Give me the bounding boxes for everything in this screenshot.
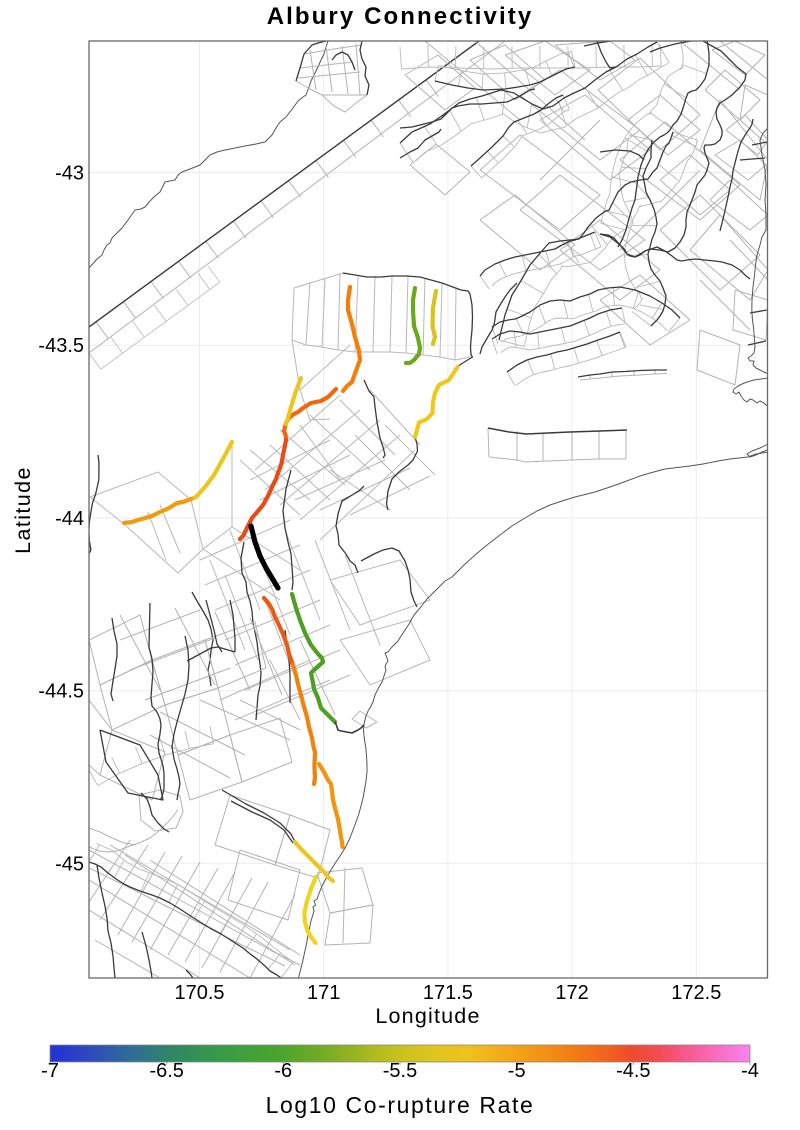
svg-text:-44: -44: [55, 508, 84, 530]
svg-text:-45: -45: [55, 853, 84, 875]
svg-text:172: 172: [555, 982, 588, 1004]
svg-text:171.5: 171.5: [423, 982, 473, 1004]
svg-text:-43: -43: [55, 163, 84, 185]
svg-text:-4: -4: [741, 1060, 759, 1082]
svg-text:-4.5: -4.5: [616, 1060, 650, 1082]
svg-text:170.5: 170.5: [174, 982, 224, 1004]
svg-text:Albury Connectivity: Albury Connectivity: [267, 3, 534, 30]
svg-text:-43.5: -43.5: [38, 335, 84, 357]
svg-text:-7: -7: [41, 1060, 59, 1082]
svg-text:-6.5: -6.5: [149, 1060, 183, 1082]
svg-text:-6: -6: [274, 1060, 292, 1082]
svg-text:Log10 Co-rupture Rate: Log10 Co-rupture Rate: [266, 1092, 535, 1118]
svg-text:-5.5: -5.5: [383, 1060, 417, 1082]
svg-text:-5: -5: [508, 1060, 526, 1082]
svg-text:Longitude: Longitude: [375, 1004, 480, 1028]
svg-text:171: 171: [307, 982, 340, 1004]
svg-text:Latitude: Latitude: [11, 466, 35, 554]
svg-text:172.5: 172.5: [671, 982, 721, 1004]
svg-text:-44.5: -44.5: [38, 681, 84, 703]
